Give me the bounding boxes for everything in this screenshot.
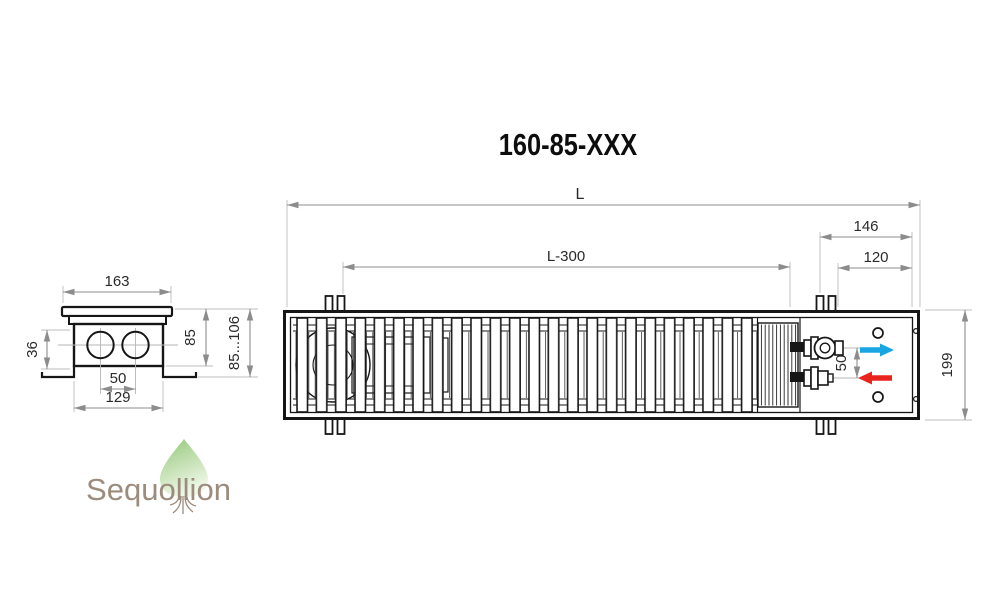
dim-label-pipe-spacing-main: 50 [833, 355, 850, 372]
dim-label-grille-length: L-300 [547, 248, 585, 265]
section-lid [62, 307, 172, 316]
logo-wordmark: Sequollion [86, 472, 231, 507]
dim-label-length: L [576, 186, 585, 203]
dim-label-pipe-spacing-section: 50 [110, 370, 127, 387]
dim-label-bottom-width: 129 [105, 389, 130, 406]
dim-label-mount-height: 85...106 [226, 316, 243, 370]
dim-label-connection-zone: 146 [853, 218, 878, 235]
hole-top [873, 328, 883, 338]
dim-label-connection-offset: 120 [863, 249, 888, 266]
dim-label-top-width: 163 [104, 273, 129, 290]
brand-logo: Sequollion [84, 436, 244, 520]
main-top-view [285, 296, 919, 434]
section-foot-right [163, 366, 196, 377]
dim-label-depth: 199 [939, 352, 956, 377]
grille-slats [293, 318, 757, 412]
hole-bottom [873, 392, 883, 402]
section-lid-step [69, 316, 166, 324]
dim-label-pipe-axis: 36 [24, 341, 41, 358]
dim-label-body-height: 85 [182, 329, 199, 346]
return-fitting [804, 367, 833, 389]
heat-exchanger-fins [760, 325, 797, 406]
